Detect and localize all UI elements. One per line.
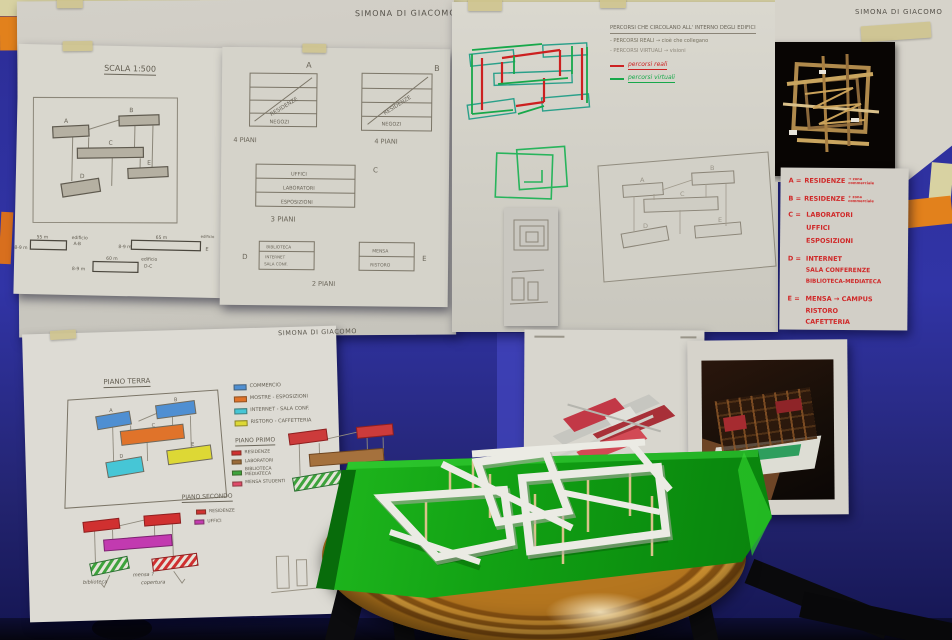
pencil-plan-letter-c: C bbox=[680, 190, 685, 198]
percorsi-notes: PERCORSI CHE CIRCOLANO ALL' INTERNO DEGL… bbox=[610, 14, 778, 83]
dim3-name: edificio bbox=[141, 256, 158, 262]
function-b-key: B = bbox=[788, 196, 801, 204]
terra-letter-a: A bbox=[109, 408, 113, 414]
tape-piece bbox=[57, 0, 83, 8]
green-squares-sketch bbox=[488, 144, 584, 208]
section-e-row-ristoro: RISTORO bbox=[370, 262, 391, 268]
site-plan-drawing: A B C D E 55 m 8-9 m edificio A-B 65 m 8… bbox=[13, 44, 226, 298]
dim1-height: 8-9 m bbox=[14, 245, 27, 251]
swatch-commercio bbox=[234, 384, 247, 390]
section-c-floors: 3 PIANI bbox=[271, 215, 296, 223]
function-e-line-2: RISTORO bbox=[805, 308, 838, 316]
stool-seat-glare bbox=[545, 592, 655, 632]
terra-legend-commercio: COMMERCIO bbox=[234, 383, 281, 390]
plan-letter-c: C bbox=[109, 140, 113, 147]
legend-row-reali: percorsi reali bbox=[610, 62, 778, 70]
percorsi-plan-drawing bbox=[458, 32, 618, 152]
section-b-negozi: NEGOZI bbox=[382, 121, 402, 127]
function-d-key: D = bbox=[788, 256, 801, 264]
pencil-plan-drawing: A B C D E bbox=[588, 138, 788, 300]
dim2-height: 8-9 m bbox=[118, 244, 131, 250]
primo-legend-residenze: RESIDENZE bbox=[231, 450, 270, 456]
sections-de-floors: 2 PIANI bbox=[312, 280, 335, 288]
section-e-letter: E bbox=[422, 255, 427, 263]
pencil-plan-letter-a: A bbox=[640, 176, 645, 184]
section-b-floors: 4 PIANI bbox=[374, 137, 397, 145]
section-d-row-internet: INTERNET bbox=[265, 254, 285, 259]
site-plan-sheet: SCALA 1:500 A B C D E bbox=[13, 44, 226, 298]
percorsi-sheet: PERCORSI CHE CIRCOLANO ALL' INTERNO DEGL… bbox=[452, 2, 778, 332]
section-e-row-mensa: MENSA bbox=[372, 248, 389, 254]
pencil-plan-letter-d: D bbox=[643, 222, 648, 230]
piano-primo-title: PIANO PRIMO bbox=[235, 437, 275, 446]
terra-legend-internet: INTERNET - SALA CONF. bbox=[234, 406, 309, 414]
dimension-bars bbox=[30, 238, 201, 274]
function-a-value: RESIDENZE bbox=[804, 178, 845, 186]
dim3-length: 60 m bbox=[106, 256, 118, 262]
pencil-plan-letter-e: E bbox=[718, 216, 722, 224]
tape-piece bbox=[600, 0, 626, 8]
architecture-stick-model bbox=[330, 432, 780, 592]
swatch-biblioteca bbox=[232, 471, 242, 476]
swatch-ristoro bbox=[235, 420, 248, 426]
legend-reali-label: percorsi reali bbox=[628, 62, 667, 70]
section-b-residenze: RESIDENZE bbox=[383, 95, 413, 117]
function-c-key: C = bbox=[788, 212, 801, 220]
spiral-sketch bbox=[504, 208, 558, 326]
swatch-residenze bbox=[231, 450, 241, 455]
swatch-laboratori bbox=[232, 459, 242, 464]
legend-row-virtuali: percorsi virtuali bbox=[610, 75, 778, 83]
function-d-line-1: INTERNET bbox=[806, 256, 842, 264]
functions-legend-sheet: A = RESIDENZE → zona commerciale B = RES… bbox=[779, 167, 908, 330]
sections-sheet: A B C D E RESIDENZE RESIDENZE NEGOZI NEG… bbox=[220, 47, 451, 307]
section-a-letter: A bbox=[306, 61, 312, 70]
terra-letter-d: D bbox=[119, 454, 123, 460]
swatch-mensa bbox=[232, 481, 242, 486]
terra-legend-commercio-label: COMMERCIO bbox=[250, 383, 281, 390]
wall-orange-right bbox=[903, 196, 952, 229]
dim3-height: 8-9 m bbox=[72, 266, 85, 272]
plan-letter-e: E bbox=[147, 160, 151, 167]
function-e-line-1: MENSA → CAMPUS bbox=[806, 296, 873, 304]
function-d-line-2: SALA CONFERENZE bbox=[806, 268, 870, 275]
section-d-row-biblioteca: BIBLIOTECA bbox=[266, 244, 291, 249]
floor-plans-sheet: SIMONA DI GIACOMO PIANO TERRA A B C D bbox=[22, 326, 344, 623]
terra-letter-b: B bbox=[174, 397, 178, 403]
section-c-row-uffici: UFFICI bbox=[291, 172, 307, 178]
section-c-letter: C bbox=[373, 166, 378, 174]
section-d-letter: D bbox=[242, 253, 247, 261]
site-plan-buildings bbox=[51, 113, 169, 200]
dim2-ref: E bbox=[205, 247, 208, 253]
note-biblioteca: biblioteca bbox=[83, 580, 108, 586]
note-mensa: mensa ? bbox=[133, 573, 154, 579]
dim1-length: 55 m bbox=[37, 234, 49, 240]
top-right-sheet: SIMONA DI GIACOMO bbox=[775, 0, 952, 182]
function-a-note: → zona commerciale bbox=[848, 178, 882, 186]
function-a-key: A = bbox=[789, 178, 802, 186]
section-b-letter: B bbox=[434, 64, 440, 73]
function-e-line-3: CAFETTERIA bbox=[805, 319, 850, 327]
plan-letter-a: A bbox=[64, 118, 69, 125]
primo-legend-residenze-label: RESIDENZE bbox=[244, 450, 270, 456]
dim3-ref: D-C bbox=[144, 264, 152, 270]
photo-of-pinup-wall: SIMONA DI GIACOMO SCALA 1:500 A B bbox=[0, 0, 952, 640]
terra-legend-mostre-label: MOSTRE - ESPOSIZIONI bbox=[250, 395, 308, 402]
function-b-note: + zona commerciale bbox=[848, 196, 882, 204]
function-b-value: RESIDENZE bbox=[804, 196, 845, 204]
dim1-ref: A-B bbox=[73, 241, 81, 247]
percorsi-note-reali: - PERCORSI REALI → cioè che collegano bbox=[610, 39, 778, 45]
dim2-length: 65 m bbox=[156, 235, 168, 241]
author-name-bottom: SIMONA DI GIACOMO bbox=[278, 328, 357, 338]
percorsi-title: PERCORSI CHE CIRCOLANO ALL' INTERNO DEGL… bbox=[610, 26, 756, 34]
wood-model-photo bbox=[769, 42, 895, 176]
swatch-internet bbox=[234, 408, 247, 414]
section-a-negozi: NEGOZI bbox=[270, 119, 290, 125]
tape-piece bbox=[861, 22, 932, 43]
function-e-key: E = bbox=[788, 296, 800, 304]
section-a-floors: 4 PIANI bbox=[233, 136, 256, 144]
pencil-plan-letter-b: B bbox=[710, 164, 714, 172]
caption-mark bbox=[534, 336, 564, 338]
function-a-row: A = RESIDENZE → zona commerciale bbox=[789, 178, 883, 187]
wood-stick-model bbox=[769, 42, 895, 176]
tape-piece bbox=[302, 44, 326, 53]
piano-secondo-plan bbox=[72, 501, 265, 616]
terra-letter-c: C bbox=[152, 423, 156, 429]
section-c-row-esposizioni: ESPOSIZIONI bbox=[281, 199, 313, 205]
dim1-name: edificio bbox=[72, 235, 89, 241]
terra-legend-mostre: MOSTRE - ESPOSIZIONI bbox=[234, 394, 308, 402]
percorsi-note-virtuali: - PERCORSI VIRTUALI → visioni bbox=[610, 49, 778, 55]
function-b-row: B = RESIDENZE + zona commerciale bbox=[788, 196, 882, 205]
author-name-top-right: SIMONA DI GIACOMO bbox=[855, 8, 943, 16]
note-copertura: copertura bbox=[141, 581, 166, 587]
plan-letter-d: D bbox=[80, 173, 85, 180]
red-path-swatch bbox=[610, 65, 624, 67]
function-c-line-1: LABORATORI bbox=[806, 212, 853, 220]
primo-legend-laboratori-label: LABORATORI bbox=[245, 458, 274, 464]
swatch-mostre bbox=[234, 396, 247, 402]
author-name-top-left: SIMONA DI GIACOMO bbox=[355, 8, 457, 18]
function-c-line-3: ESPOSIZIONI bbox=[806, 238, 853, 246]
primo-legend-laboratori: LABORATORI bbox=[232, 458, 274, 464]
legend-virtuali-label: percorsi virtuali bbox=[628, 75, 675, 83]
small-sketch-strip bbox=[504, 208, 558, 326]
tape-piece bbox=[468, 0, 502, 11]
terra-letter-e: E bbox=[191, 442, 194, 448]
section-c-row-laboratori: LABORATORI bbox=[283, 185, 315, 191]
function-c-line-2: UFFICI bbox=[806, 225, 830, 233]
terra-legend-internet-label: INTERNET - SALA CONF. bbox=[250, 407, 309, 414]
dim2-name: edificio bbox=[201, 234, 215, 239]
green-path-swatch bbox=[610, 78, 624, 80]
tape-piece bbox=[50, 329, 77, 340]
section-d-row-salaconf: SALA CONF. bbox=[264, 261, 288, 266]
sections-drawing: A B C D E RESIDENZE RESIDENZE NEGOZI NEG… bbox=[220, 47, 451, 307]
function-d-line-3: BIBLIOTECA-MEDIATECA bbox=[806, 279, 882, 286]
wall-orange-left-patch bbox=[0, 212, 13, 265]
tape-piece bbox=[63, 41, 93, 51]
caption-mark-2 bbox=[680, 336, 696, 338]
plan-letter-b: B bbox=[129, 107, 133, 114]
